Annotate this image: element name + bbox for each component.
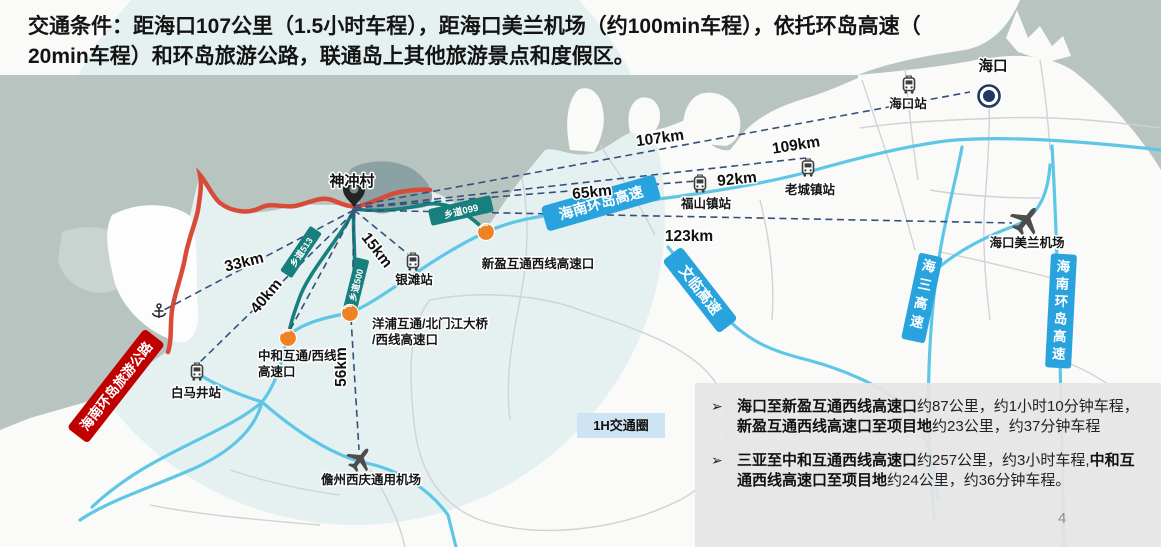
station-label-haikou: 海口站 <box>889 96 927 111</box>
page-number: 4 <box>1058 510 1066 527</box>
route-info-text-2: 三亚至中和互通西线高速口约257公里，约3小时车程,中和互通西线高速口至项目地约… <box>737 451 1142 492</box>
interchange-label-yangpu-1: 洋浦互通/北门江大桥 <box>372 316 488 331</box>
train-icon <box>695 175 706 193</box>
bullet-arrow-icon: ➢ <box>711 397 737 438</box>
airport-label-meilan: 海口美兰机场 <box>989 235 1064 250</box>
city-label-haikou: 海口 <box>979 57 1008 75</box>
train-icon <box>904 76 915 94</box>
interchange-label-zhonghe-2: 高速口 <box>258 364 296 379</box>
slide: 乡道099 乡道513 乡道500 海南环岛高速 文临高速 海三高速 海南环岛高… <box>0 0 1161 547</box>
route-info-text-1: 海口至新盈互通西线高速口约87公里，约1小时10分钟车程，新盈互通西线高速口至项… <box>737 397 1142 438</box>
village-label-shenchong: 神冲村 <box>329 172 374 190</box>
station-label-laocheng: 老城镇站 <box>784 182 836 197</box>
train-icon <box>803 159 814 177</box>
slide-title-line2: 20min车程）和环岛旅游公路，联通岛上其他旅游景点和度假区。 <box>28 42 958 72</box>
station-label-fushan: 福山镇站 <box>680 196 732 211</box>
slide-title-line1: 交通条件：距海口107公里（1.5小时车程），距海口美兰机场（约100min车程… <box>28 12 958 42</box>
bullet-arrow-icon: ➢ <box>711 451 737 492</box>
interchange-label-yangpu-2: /西线高速口 <box>372 332 438 347</box>
route-info-box: ➢ 海口至新盈互通西线高速口约87公里，约1小时10分钟车程，新盈互通西线高速口… <box>695 383 1161 547</box>
haikou-city-marker <box>979 86 1000 107</box>
interchange-dot-icon <box>342 305 359 322</box>
station-label-baimajing: 白马井站 <box>171 385 222 400</box>
interchange-label-xinying: 新盈互通西线高速口 <box>482 256 595 271</box>
interchange-dot-icon <box>478 224 495 241</box>
distance-123km: 123km <box>665 228 713 245</box>
one-hour-circle-label: 1H交通圈 <box>577 413 665 438</box>
interchange-dot-icon <box>280 330 297 347</box>
svg-text:1H交通圈: 1H交通圈 <box>593 418 649 433</box>
train-icon <box>408 253 419 271</box>
train-icon <box>192 363 203 381</box>
interchange-label-zhonghe-1: 中和互通/西线 <box>258 348 337 363</box>
slide-title: 交通条件：距海口107公里（1.5小时车程），距海口美兰机场（约100min车程… <box>28 12 958 73</box>
route-info-bullet-2: ➢ 三亚至中和互通西线高速口约257公里，约3小时车程,中和互通西线高速口至项目… <box>711 451 1147 492</box>
route-info-bullet-1: ➢ 海口至新盈互通西线高速口约87公里，约1小时10分钟车程，新盈互通西线高速口… <box>711 397 1147 438</box>
station-label-yintan: 银滩站 <box>395 272 433 287</box>
airport-label-danzhou: 儋州西庆通用机场 <box>321 472 421 487</box>
